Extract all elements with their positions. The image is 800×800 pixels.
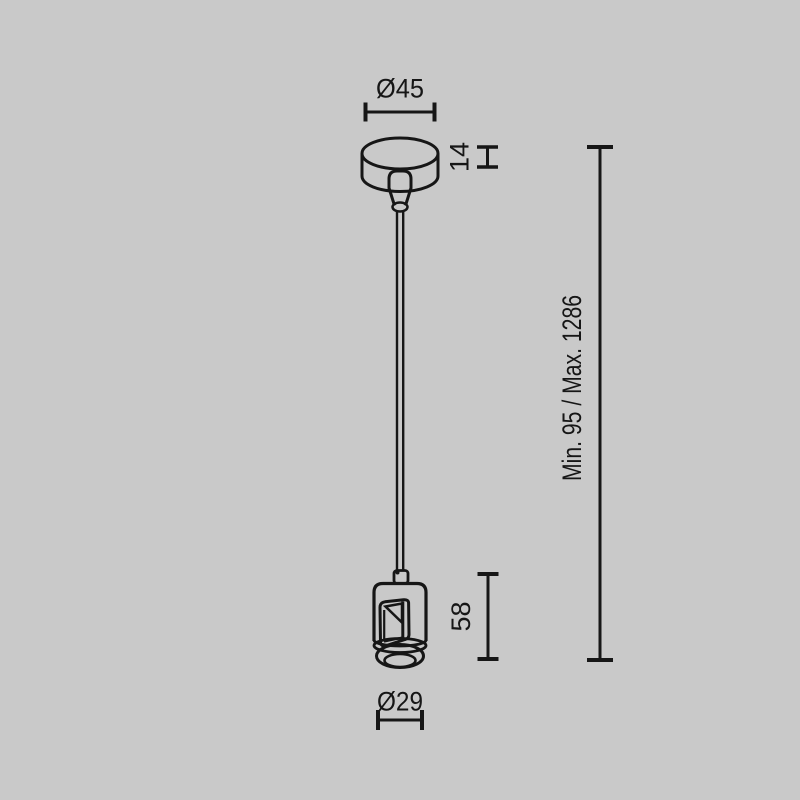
dim-canopy-height: 14	[445, 142, 499, 172]
holder-lens-ring	[385, 654, 416, 667]
holder-cap-screw	[396, 571, 400, 575]
dim-canopy-diameter: Ø45	[366, 74, 435, 122]
dim-label-holder-diameter: Ø29	[377, 687, 423, 717]
suspension-wire-drawing	[397, 211, 403, 571]
dim-label-canopy-height: 14	[445, 142, 475, 172]
holder-clamp-window	[380, 600, 409, 646]
holder-bottom-bulge	[377, 645, 424, 668]
dim-label-suspension-length: Min. 95 / Max. 1286	[557, 295, 587, 481]
lamp-holder-drawing	[374, 571, 426, 668]
suspension-kit-diagram: Ø45 14 Min. 95 / Max. 1286 58	[0, 0, 800, 800]
window-clamp-wedge	[386, 604, 403, 623]
ceiling-canopy-drawing	[362, 138, 438, 212]
dim-label-canopy-diameter: Ø45	[376, 74, 424, 104]
dim-holder-height: 58	[446, 574, 499, 659]
strain-relief-nub	[393, 203, 408, 212]
canopy-strain-relief	[389, 171, 411, 189]
canopy-top-face	[362, 138, 438, 169]
dim-suspension-length: Min. 95 / Max. 1286	[557, 147, 613, 660]
dim-holder-diameter: Ø29	[377, 687, 423, 731]
dim-label-holder-height: 58	[446, 601, 476, 631]
diagram-canvas: Ø45 14 Min. 95 / Max. 1286 58	[0, 0, 800, 800]
